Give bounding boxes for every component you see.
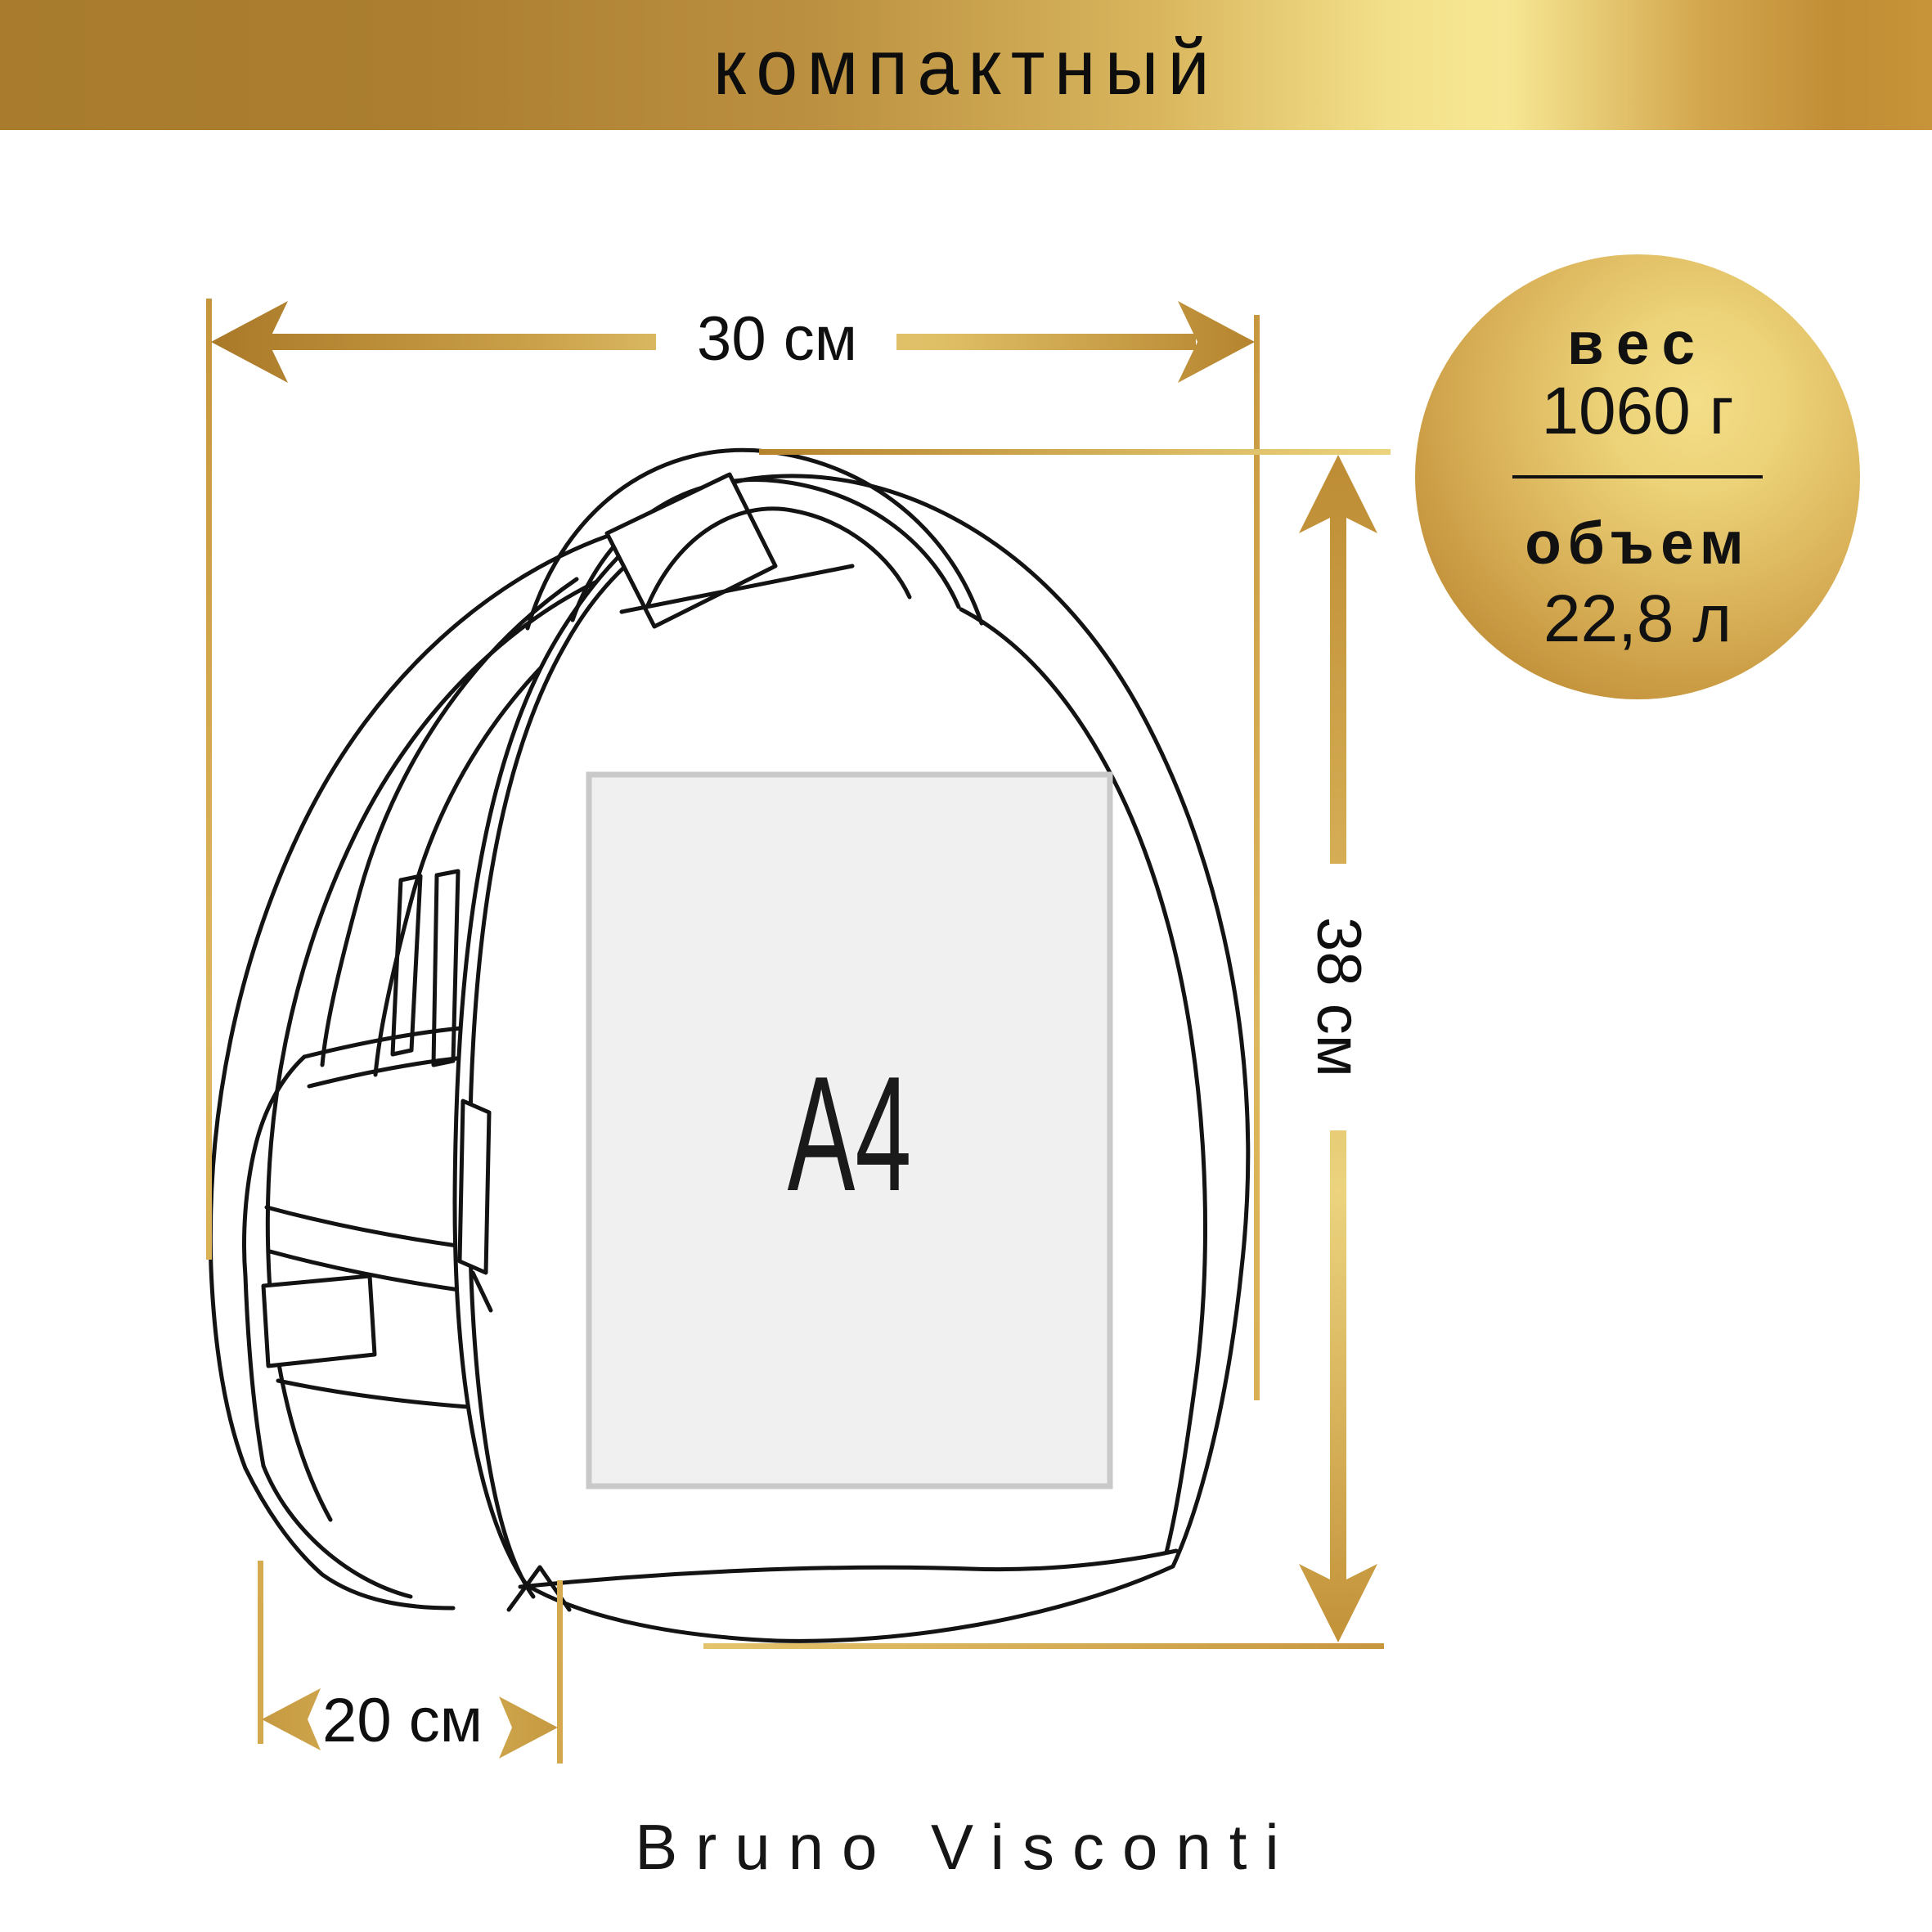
dim-depth-label: 20 см <box>288 1690 517 1752</box>
backpack-pocket-seam <box>278 1381 468 1407</box>
brand-name: Bruno Visconti <box>0 1806 1932 1888</box>
backpack-strap-webbing <box>434 871 458 1065</box>
product-infographic: компактный <box>0 0 1932 1932</box>
dim-height-shaft-top <box>1330 512 1346 864</box>
spec-badge: вес 1060 г объем 22,8 л <box>1415 254 1860 699</box>
dim-width-shaft-left <box>268 334 656 350</box>
a4-size-label: А4 <box>688 1057 1011 1212</box>
volume-label: объем <box>1415 513 1860 575</box>
dim-width-tick-left <box>206 299 212 1260</box>
backpack-pocket-top-band <box>309 1058 465 1086</box>
backpack-strap-webbing <box>393 876 420 1054</box>
volume-value: 22,8 л <box>1415 585 1860 654</box>
dim-width-label: 30 см <box>622 308 932 371</box>
backpack-zipper-flap <box>460 1101 489 1273</box>
dim-height-ext-top <box>759 449 1391 455</box>
dim-depth-tick-left <box>258 1561 263 1744</box>
backpack-pocket-zip-band <box>267 1207 463 1247</box>
dim-depth-tick-right <box>557 1580 563 1764</box>
badge-divider <box>1512 475 1763 479</box>
dim-width-shaft-right <box>896 334 1196 350</box>
weight-value: 1060 г <box>1415 377 1860 446</box>
dim-height-shaft-bottom <box>1330 1130 1346 1585</box>
dim-width-tick-right <box>1254 315 1260 1400</box>
backpack-label-patch <box>263 1276 375 1366</box>
dim-height-label: 38 см <box>1307 842 1369 1152</box>
weight-label: вес <box>1415 313 1860 375</box>
dim-height-ext-bottom <box>703 1643 1384 1649</box>
